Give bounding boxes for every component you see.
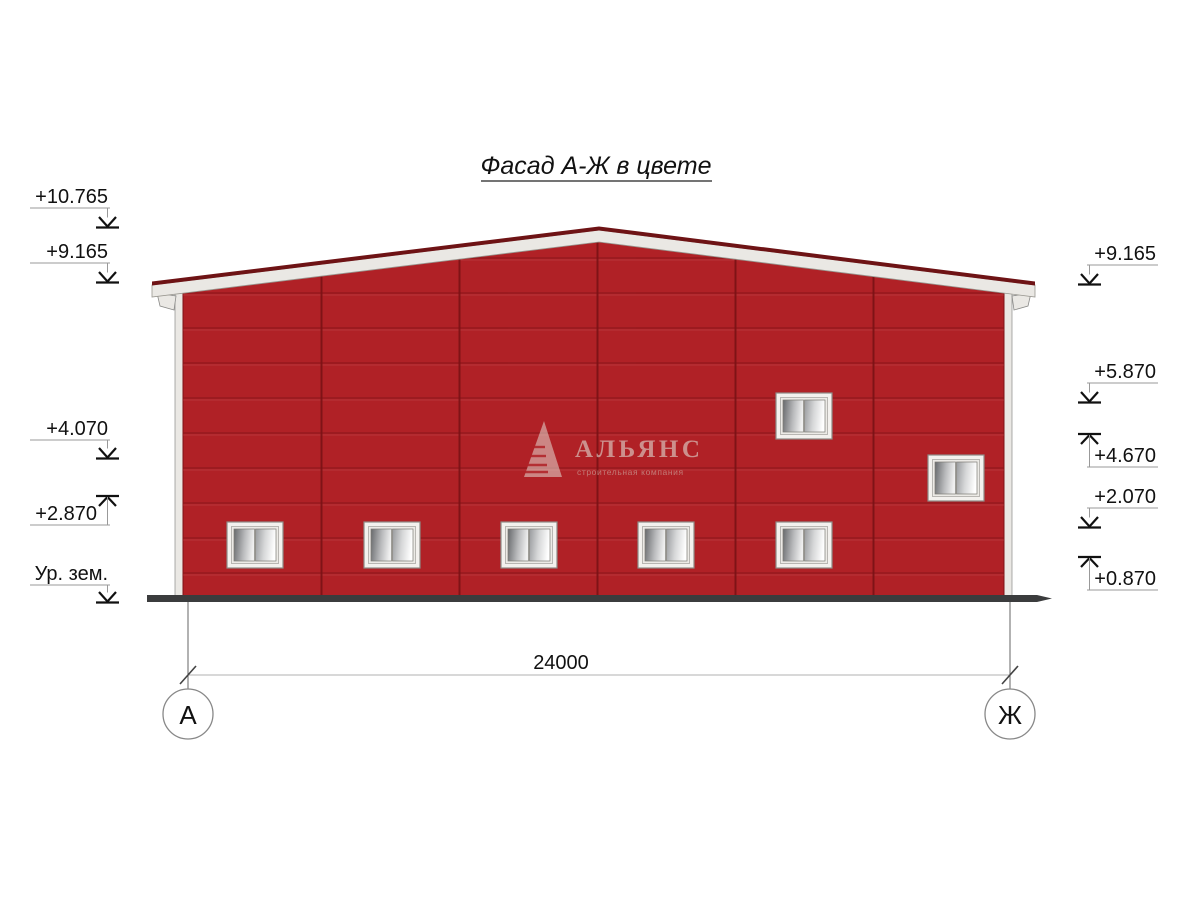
window-upper-1 [776, 393, 832, 439]
elevation-label: +4.670 [1094, 445, 1156, 467]
window-row1-4 [638, 522, 694, 568]
elevation-label: +9.165 [1094, 243, 1156, 265]
elevation-label: +9.165 [46, 241, 108, 263]
window-upper-2 [928, 455, 984, 501]
window-row1-3 [501, 522, 557, 568]
elevation-label: +2.870 [35, 503, 97, 525]
down-arrow-icon [99, 217, 116, 227]
down-arrow-icon [99, 592, 116, 602]
elevation-label: Ур. зем. [35, 563, 108, 585]
down-arrow-icon [99, 448, 116, 458]
window-row1-2 [364, 522, 420, 568]
window-row1-5 [776, 522, 832, 568]
elevation-label: +10.765 [35, 186, 108, 208]
elevation-mark-left-10765: +10.765 [30, 186, 119, 228]
elevation-label: +2.070 [1094, 486, 1156, 508]
elevation-label: +5.870 [1094, 361, 1156, 383]
facade-drawing: Фасад А-Ж в цвете [0, 0, 1200, 900]
elevation-mark-left-9165: +9.165 [30, 241, 119, 283]
down-arrow-icon [1081, 392, 1098, 402]
drawing-canvas: Фасад А-Ж в цвете [0, 0, 1200, 900]
watermark-name: АЛЬЯНС [575, 436, 703, 463]
dimension-text: 24000 [533, 652, 589, 674]
axis-label-right: Ж [998, 700, 1022, 730]
page-title: Фасад А-Ж в цвете [481, 152, 712, 181]
down-arrow-icon [99, 272, 116, 282]
elevation-mark-right-0870: +0.870 [1078, 557, 1158, 590]
elevation-mark-left-ground: Ур. зем. [30, 563, 119, 603]
axis-grid: А Ж [163, 602, 1035, 739]
elevation-mark-left-4070: +4.070 [30, 418, 119, 459]
axis-label-left: А [179, 700, 197, 730]
elevation-mark-right-5870: +5.870 [1078, 361, 1158, 403]
dimension: 24000 [180, 652, 1018, 684]
elevation-label: +0.870 [1094, 568, 1156, 590]
elevation-label: +4.070 [46, 418, 108, 440]
ground-line [147, 595, 1052, 602]
building: АЛЬЯНС строительная компания [147, 227, 1052, 603]
corner-trim-right [1004, 290, 1012, 597]
window-row1-1 [227, 522, 283, 568]
title-text: Фасад А-Ж в цвете [481, 152, 712, 180]
elevation-mark-right-4670: +4.670 [1078, 434, 1158, 467]
elevation-mark-left-2870: +2.870 [30, 496, 119, 525]
watermark-subtitle: строительная компания [577, 467, 684, 477]
corner-trim-left [175, 290, 183, 597]
down-arrow-icon [1081, 517, 1098, 527]
elevation-mark-right-2070: +2.070 [1078, 486, 1158, 528]
elevation-mark-right-9165: +9.165 [1078, 243, 1158, 285]
down-arrow-icon [1081, 274, 1098, 284]
